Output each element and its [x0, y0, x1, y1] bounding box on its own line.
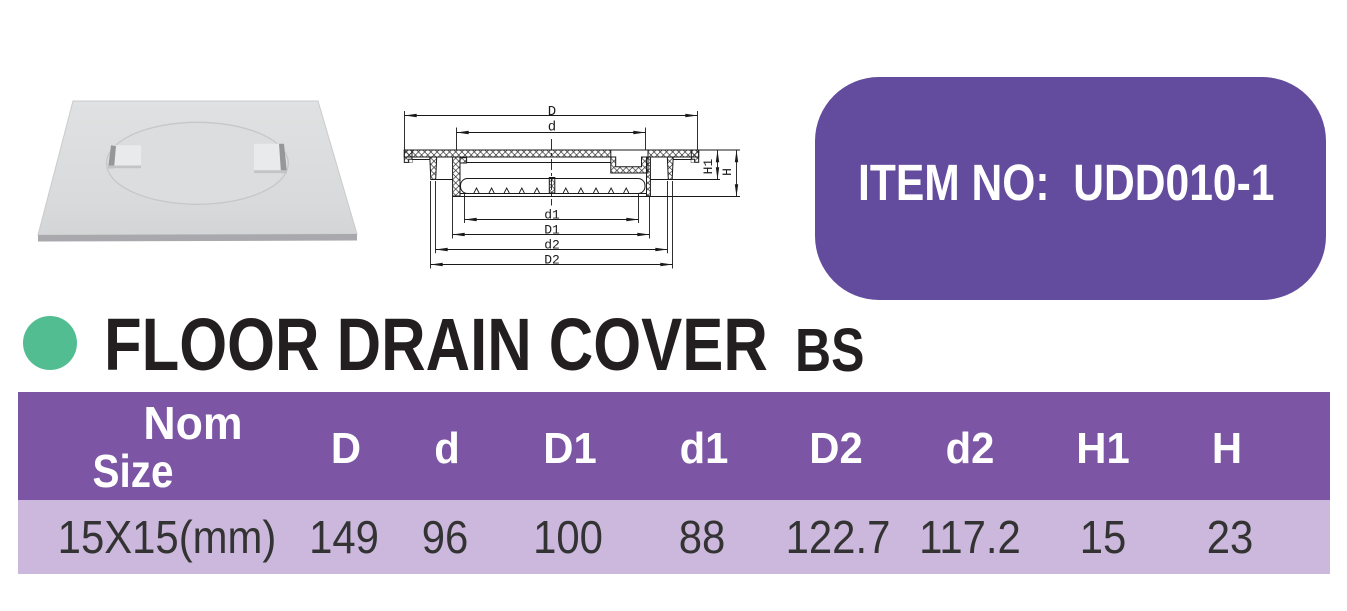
- svg-text:d1: d1: [544, 208, 560, 223]
- svg-text:D: D: [548, 104, 556, 120]
- svg-text:d2: d2: [544, 238, 560, 253]
- svg-text:d: d: [548, 120, 556, 136]
- svg-text:D1: D1: [544, 223, 560, 238]
- svg-text:H: H: [720, 168, 735, 176]
- svg-text:H1: H1: [701, 159, 716, 175]
- svg-text:D2: D2: [544, 253, 560, 268]
